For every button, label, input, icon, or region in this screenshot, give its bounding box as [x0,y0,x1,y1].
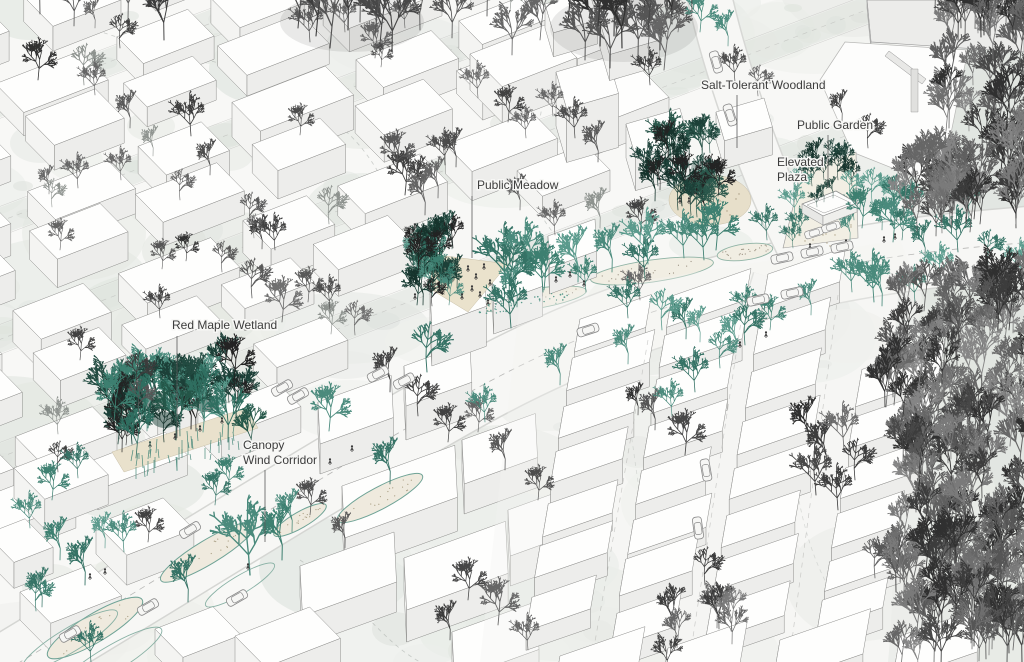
svg-text:Public Garden: Public Garden [797,118,873,132]
svg-text:Plaza: Plaza [777,170,807,184]
svg-text:Elevated: Elevated [777,155,824,169]
svg-text:Salt-Tolerant Woodland: Salt-Tolerant Woodland [701,78,826,92]
svg-text:Red Maple Wetland: Red Maple Wetland [172,318,277,332]
svg-text:Wind Corridor: Wind Corridor [243,453,317,467]
svg-text:Public Meadow: Public Meadow [477,178,559,192]
svg-text:Canopy: Canopy [243,438,284,452]
